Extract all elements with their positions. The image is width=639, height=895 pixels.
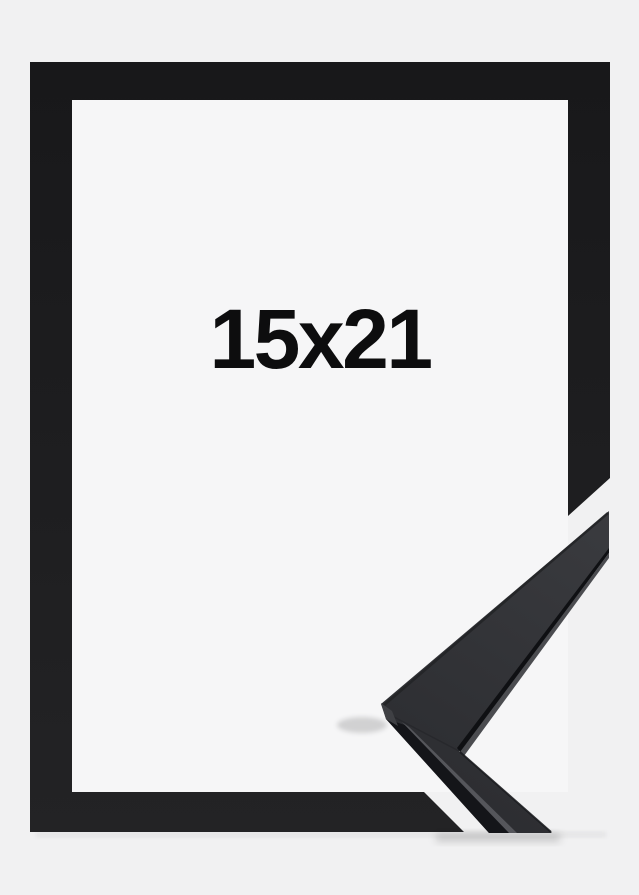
corner-tip-shadow bbox=[337, 717, 387, 733]
picture-frame-graphic bbox=[0, 0, 639, 895]
product-image: 15x21 bbox=[0, 0, 639, 895]
size-label: 15x21 bbox=[72, 291, 568, 387]
corner-bottom-shadow bbox=[436, 833, 560, 842]
